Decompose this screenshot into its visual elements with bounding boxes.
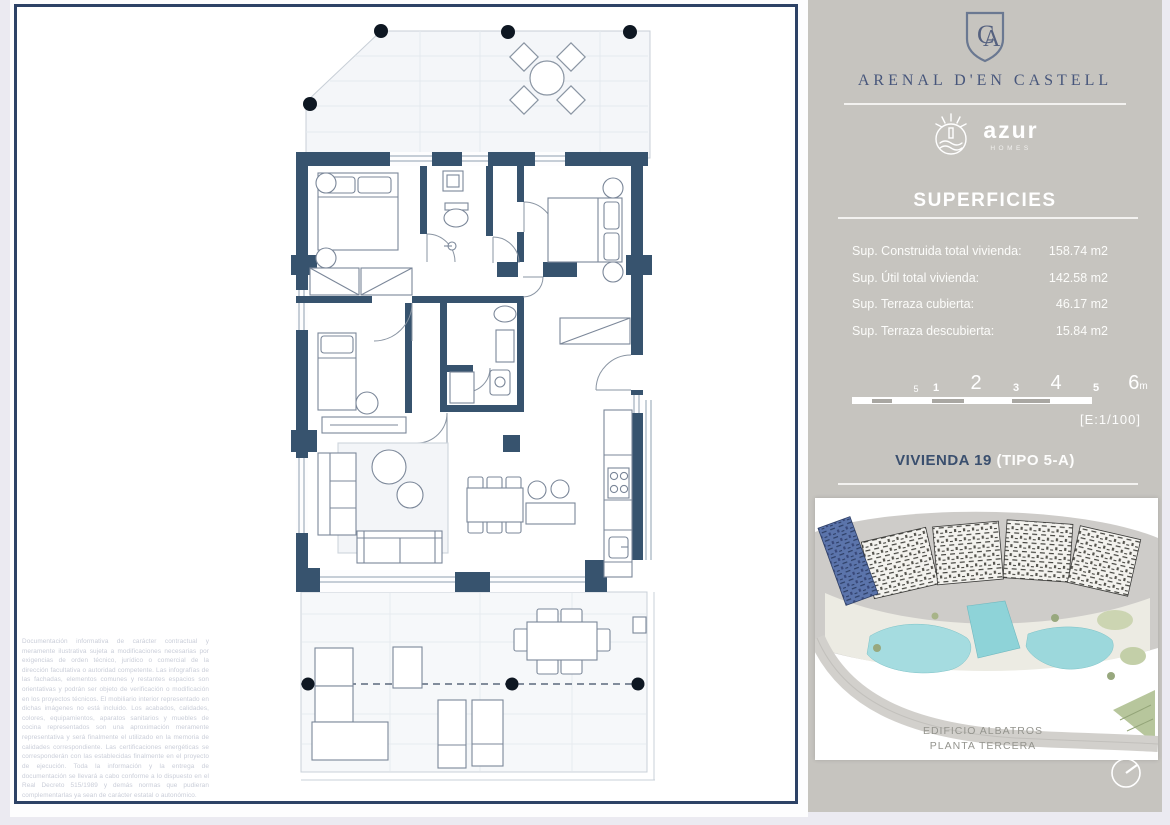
row-value: 158.74 m2: [1049, 244, 1108, 258]
superficies-table: Sup. Construida total vivienda: 158.74 m…: [852, 238, 1108, 344]
row-label: Sup. Construida total vivienda:: [852, 244, 1022, 258]
table-row: Sup. Útil total vivienda: 142.58 m2: [852, 265, 1108, 292]
azur-wordmark: azur: [983, 119, 1038, 142]
azur-homes-label: HOMES: [990, 145, 1031, 152]
row-value: 142.58 m2: [1049, 271, 1108, 285]
row-label: Sup. Terraza cubierta:: [852, 297, 974, 311]
site-plan-drawing: EDIFICIO ALBATROS PLANTA TERCERA: [815, 498, 1158, 760]
azur-homes-logo: azur HOMES: [808, 112, 1162, 158]
row-value: 46.17 m2: [1056, 297, 1108, 311]
site-plan-caption-1: EDIFICIO ALBATROS: [923, 725, 1043, 737]
table-row: Sup. Terraza cubierta: 46.17 m2: [852, 291, 1108, 318]
scale-mark: 3: [1013, 382, 1019, 394]
table-row: Sup. Terraza descubierta: 15.84 m2: [852, 318, 1108, 345]
azur-emblem-icon: [931, 112, 971, 158]
site-plan-card: EDIFICIO ALBATROS PLANTA TERCERA: [815, 498, 1158, 760]
unit-type: (TIPO 5-A): [996, 452, 1074, 469]
scale-mark: 6m: [1128, 372, 1147, 395]
lower-terrace: [301, 592, 655, 780]
monogram-a: A: [983, 26, 1001, 52]
divider: [844, 103, 1126, 105]
scale-mark: 1: [933, 382, 939, 394]
scale-mark: 5: [913, 384, 918, 394]
row-label: Sup. Terraza descubierta:: [852, 324, 994, 338]
legal-disclaimer: Documentación informativa de carácter co…: [22, 637, 209, 800]
row-label: Sup. Útil total vivienda:: [852, 271, 979, 285]
site-plan-caption-2: PLANTA TERCERA: [930, 740, 1036, 752]
brochure-page: { "header": { "monogram": "CA", "project…: [0, 0, 1170, 825]
scale-mark: 2: [970, 372, 981, 395]
scale-unit: m: [1139, 381, 1147, 392]
shield-logo: C A: [959, 9, 1011, 67]
scale-segment: [932, 399, 964, 403]
compass-icon: [1109, 756, 1143, 795]
upper-terrace: [303, 24, 650, 158]
unit-title: VIVIENDA 19 (TIPO 5-A): [808, 452, 1162, 469]
superficies-title: SUPERFICIES: [808, 190, 1162, 212]
divider: [838, 217, 1138, 219]
furniture: [310, 171, 632, 577]
table-row: Sup. Construida total vivienda: 158.74 m…: [852, 238, 1108, 265]
project-title: ARENAL D'EN CASTELL: [808, 72, 1162, 90]
page-margin: [1162, 0, 1170, 825]
info-panel: C A ARENAL D'EN CASTELL azur HOMES SUPER…: [808, 0, 1162, 812]
unit-name: VIVIENDA 19: [895, 452, 992, 469]
scale-mark: 4: [1050, 372, 1061, 395]
scale-segment: [1012, 399, 1050, 403]
scale-mark: 5: [1093, 382, 1099, 394]
divider: [838, 483, 1138, 485]
scale-bar: 5 1 2 3 4 5 6m: [852, 370, 1112, 416]
scale-bar-line: [852, 397, 1092, 404]
scale-segment: [872, 399, 892, 403]
row-value: 15.84 m2: [1056, 324, 1108, 338]
scale-ratio: [E:1/100]: [1080, 412, 1141, 427]
